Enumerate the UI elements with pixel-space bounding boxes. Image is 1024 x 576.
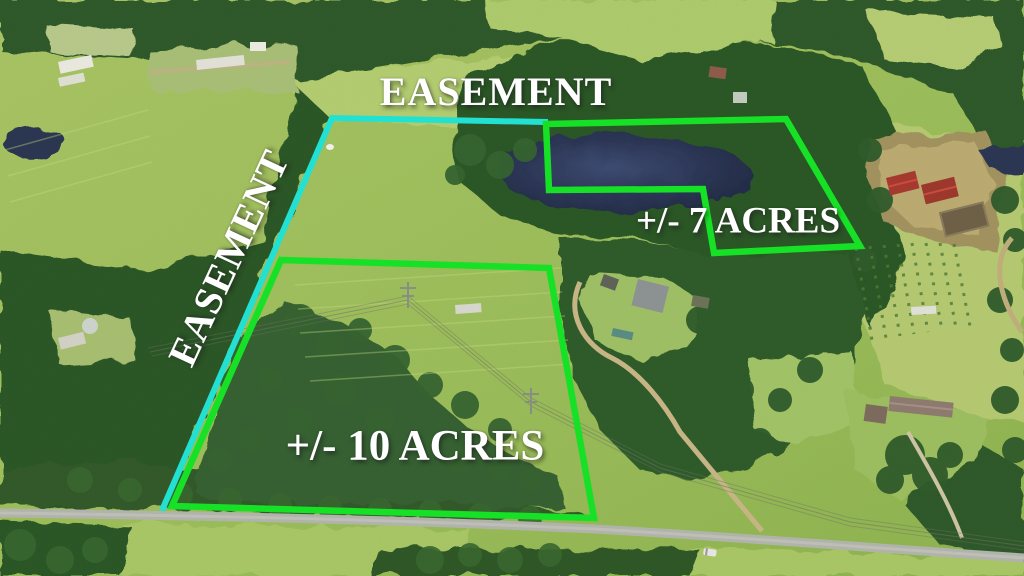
easement-label-top: EASEMENT (380, 72, 613, 112)
seven-acres-label: +/- 7 ACRES (636, 203, 840, 240)
ten-acres-label: +/- 10 ACRES (286, 425, 545, 468)
aerial-photo: EASEMENT EASEMENT +/- 7 ACRES +/- 10 ACR… (0, 0, 1024, 576)
